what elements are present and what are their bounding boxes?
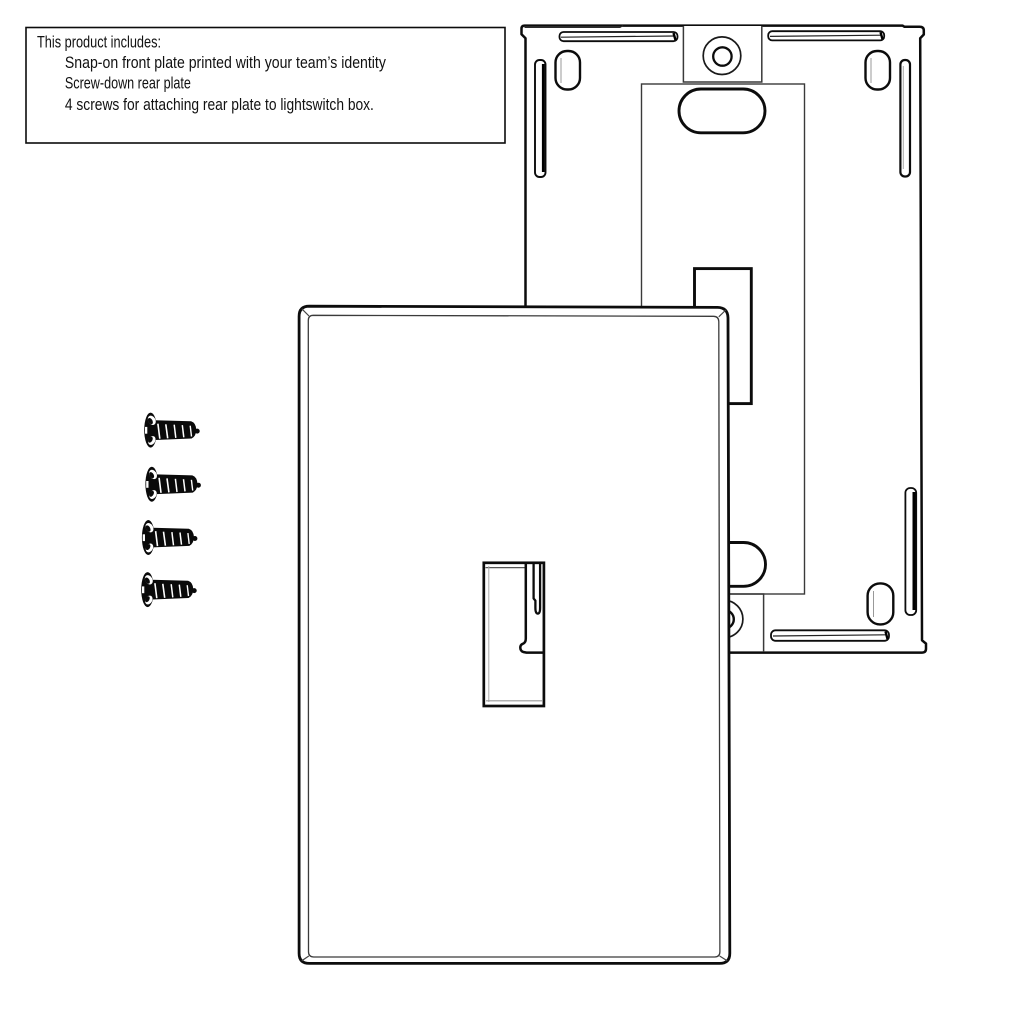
svg-text:Snap-on front plate printed wi: Snap-on front plate printed with your te… — [65, 53, 386, 72]
svg-text:Screw-down rear plate: Screw-down rear plate — [65, 74, 191, 93]
svg-text:This product includes:: This product includes: — [37, 33, 161, 52]
svg-text:4 screws for attaching rear pl: 4 screws for attaching rear plate to lig… — [65, 95, 374, 114]
